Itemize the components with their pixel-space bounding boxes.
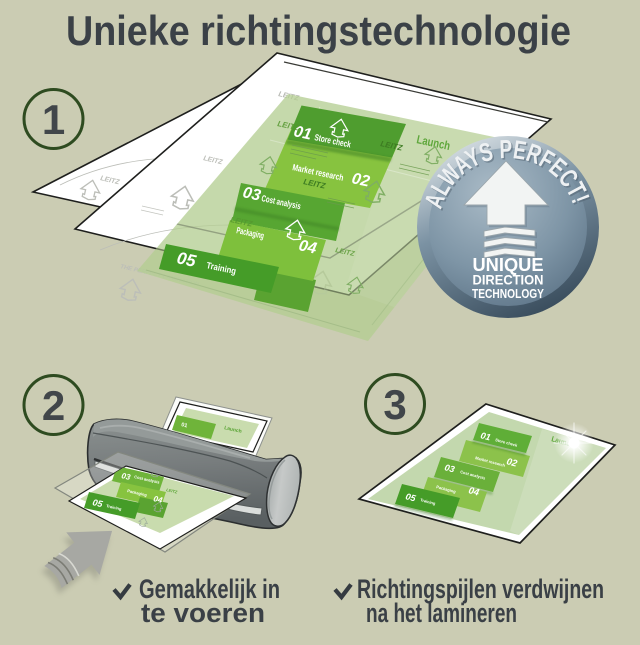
svg-text:na het lamineren: na het lamineren: [366, 598, 517, 628]
svg-text:te voeren: te voeren: [141, 598, 265, 628]
svg-text:TECHNOLOGY: TECHNOLOGY: [472, 286, 544, 301]
svg-text:1: 1: [42, 96, 65, 143]
svg-text:04: 04: [297, 237, 318, 257]
svg-text:2: 2: [42, 382, 65, 429]
svg-text:Unieke richtingstechnologie: Unieke richtingstechnologie: [66, 7, 571, 54]
svg-text:03: 03: [241, 184, 262, 204]
svg-text:3: 3: [383, 381, 406, 428]
